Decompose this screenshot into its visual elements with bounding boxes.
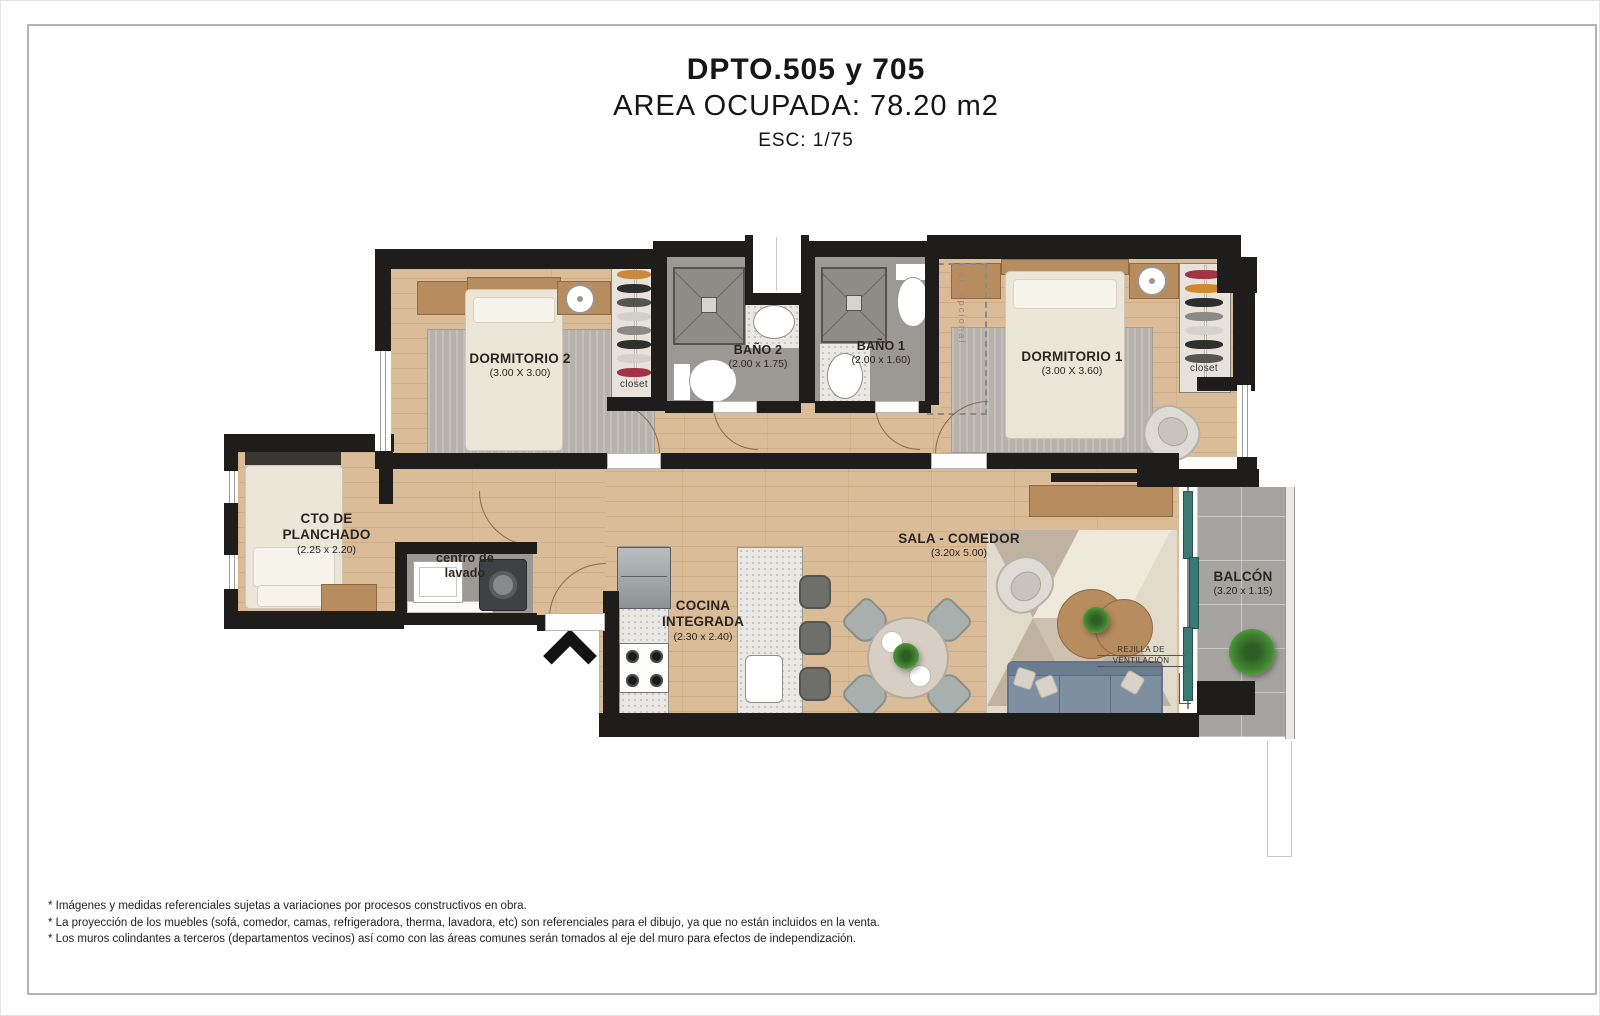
footnote: * Los muros colindantes a terceros (depa… xyxy=(48,931,880,948)
floor-plan: cl. opcional xyxy=(1,1,1599,1015)
room-dims: (3.20 x 1.15) xyxy=(1199,585,1287,598)
wall-segment xyxy=(757,401,801,413)
closet-clothes-item xyxy=(617,340,651,349)
nightstand xyxy=(417,281,469,315)
shower-drain xyxy=(846,295,862,311)
wall-segment xyxy=(385,453,607,469)
bar-stool xyxy=(799,575,831,609)
closet-clothes-item xyxy=(617,312,651,321)
label-rejilla: REJILLA DE VENTILACIÓN xyxy=(1097,645,1185,667)
wall-segment xyxy=(395,613,537,625)
wall-segment xyxy=(224,434,394,452)
room-dims: (2.30 x 2.40) xyxy=(651,631,755,644)
wall-segment xyxy=(925,257,939,405)
rejilla-leader-line xyxy=(1179,703,1191,704)
bar-stool xyxy=(799,621,831,655)
closet-clothes-item xyxy=(1185,312,1223,321)
pillow xyxy=(1013,279,1117,309)
room-dims: (3.00 X 3.60) xyxy=(982,365,1162,378)
closet-clothes-item xyxy=(617,326,651,335)
wall-segment xyxy=(653,241,753,257)
island-sink xyxy=(745,655,783,703)
wall-segment xyxy=(603,591,619,721)
wall-segment xyxy=(1217,257,1257,293)
table-lamp xyxy=(565,284,595,314)
wall-segment xyxy=(987,453,1179,469)
tv-screen xyxy=(1051,473,1145,482)
shower-drain xyxy=(701,297,717,313)
label-bano1: BAÑO 1 (2.00 x 1.60) xyxy=(837,339,925,367)
boundary-line xyxy=(1291,741,1292,857)
sink-basin xyxy=(753,305,795,339)
window-dormitorio2 xyxy=(375,351,391,451)
rejilla-text: VENTILACIÓN xyxy=(1097,656,1185,667)
room-name: SALA - COMEDOR xyxy=(879,531,1039,547)
wall-segment xyxy=(599,713,1199,737)
title-block: DPTO.505 y 705 AREA OCUPADA: 78.20 m2 ES… xyxy=(406,53,1206,152)
closet-label: closet xyxy=(1177,363,1231,375)
closet-clothes-item xyxy=(617,284,651,293)
exterior-notch xyxy=(753,233,801,293)
plan-area: AREA OCUPADA: 78.20 m2 xyxy=(406,90,1206,123)
floor-plan-page: DPTO.505 y 705 AREA OCUPADA: 78.20 m2 ES… xyxy=(0,0,1600,1016)
label-cocina: COCINA INTEGRADA (2.30 x 2.40) xyxy=(651,598,755,644)
footnote: * La proyección de los muebles (sofá, co… xyxy=(48,915,880,932)
bed-headboard xyxy=(245,452,341,465)
balcony-railing xyxy=(1285,487,1295,739)
plan-title: DPTO.505 y 705 xyxy=(406,53,1206,87)
door-sill-dormitorio1 xyxy=(931,453,987,469)
optional-closet-label: cl. opcional xyxy=(956,273,967,345)
wall-segment xyxy=(1137,469,1259,487)
wall-segment xyxy=(375,263,391,351)
sliding-glass-panel xyxy=(1183,491,1193,559)
label-dormitorio2: DORMITORIO 2 (3.00 X 3.00) xyxy=(430,351,610,380)
table-lamp xyxy=(1137,266,1167,296)
label-dormitorio1: DORMITORIO 1 (3.00 X 3.60) xyxy=(982,349,1162,378)
wall-segment xyxy=(745,293,809,305)
closet-label: closet xyxy=(607,379,661,391)
wall-segment xyxy=(815,401,875,413)
room-name: INTEGRADA xyxy=(651,614,755,630)
room-dims: (3.20x 5.00) xyxy=(879,547,1039,560)
room-dims: (2.00 x 1.75) xyxy=(715,358,801,371)
coffee-table-plant xyxy=(1083,607,1109,633)
room-name: BAÑO 1 xyxy=(837,339,925,354)
closet-clothes-item xyxy=(1185,354,1223,363)
closet-clothes-item xyxy=(1185,298,1223,307)
wall-segment xyxy=(927,235,1241,259)
closet-clothes-item xyxy=(617,368,651,377)
closet-clothes-item xyxy=(1185,326,1223,335)
label-planchado: CTO DE PLANCHADO (2.25 x 2.20) xyxy=(259,511,394,557)
footnote: * Imágenes y medidas referenciales sujet… xyxy=(48,898,880,915)
wall-segment xyxy=(807,241,933,257)
stove-burners xyxy=(619,643,669,693)
pillow xyxy=(257,585,331,607)
plan-scale: ESC: 1/75 xyxy=(406,130,1206,152)
closet-clothes-item xyxy=(1185,340,1223,349)
notch-line xyxy=(776,237,777,291)
room-dims: (2.00 x 1.60) xyxy=(837,354,925,367)
entry-direction-arrow xyxy=(543,629,597,683)
boundary-line xyxy=(1267,741,1268,857)
wall-segment xyxy=(661,453,931,469)
label-sala: SALA - COMEDOR (3.20x 5.00) xyxy=(879,531,1039,560)
pillow xyxy=(473,297,555,323)
label-lavado: centro de lavado xyxy=(419,551,511,582)
window-dormitorio1 xyxy=(1237,385,1251,457)
door-sill-bano1 xyxy=(875,401,919,413)
room-name: COCINA xyxy=(651,598,755,614)
room-name: BALCÓN xyxy=(1199,569,1287,585)
closet-clothes-item xyxy=(617,354,651,363)
closet-clothes-item xyxy=(617,270,651,279)
label-bano2: BAÑO 2 (2.00 x 1.75) xyxy=(715,343,801,371)
bar-stool xyxy=(799,667,831,701)
entry-door-sill xyxy=(545,613,605,631)
window-planchado xyxy=(224,471,238,503)
wall-segment xyxy=(224,503,238,555)
label-balcon: BALCÓN (3.20 x 1.15) xyxy=(1199,569,1287,598)
wall-segment xyxy=(224,611,404,629)
table-plant xyxy=(893,643,919,669)
room-name: lavado xyxy=(419,566,511,581)
footnotes: * Imágenes y medidas referenciales sujet… xyxy=(48,898,880,948)
wall-segment xyxy=(1197,681,1255,715)
room-dims: (3.00 X 3.00) xyxy=(430,367,610,380)
room-name: DORMITORIO 2 xyxy=(430,351,610,367)
balcony-plant xyxy=(1229,629,1275,675)
label-closet-dorm2: closet xyxy=(607,379,661,391)
wall-segment xyxy=(607,397,667,411)
wall-segment xyxy=(665,401,713,413)
plate xyxy=(909,665,931,687)
closet-clothes-item xyxy=(617,298,651,307)
wall-segment xyxy=(379,446,393,504)
room-name: PLANCHADO xyxy=(259,527,394,543)
wall-segment xyxy=(375,249,667,269)
boundary-line xyxy=(1267,856,1292,857)
label-closet-dorm1: closet xyxy=(1177,363,1231,375)
room-name: DORMITORIO 1 xyxy=(982,349,1162,365)
window-planchado xyxy=(224,555,238,589)
tv-console xyxy=(1029,485,1173,517)
rejilla-text: REJILLA DE xyxy=(1097,645,1185,656)
door-sill-bano2 xyxy=(713,401,757,413)
door-sill-dormitorio2 xyxy=(607,453,661,469)
room-dims: (2.25 x 2.20) xyxy=(259,544,394,557)
room-name: centro de xyxy=(419,551,511,566)
sliding-glass-panel xyxy=(1189,557,1199,629)
room-name: BAÑO 2 xyxy=(715,343,801,358)
rejilla-leader-line xyxy=(1179,673,1180,703)
wall-segment xyxy=(224,446,238,471)
room-name: CTO DE xyxy=(259,511,394,527)
wall-segment xyxy=(1233,291,1255,385)
